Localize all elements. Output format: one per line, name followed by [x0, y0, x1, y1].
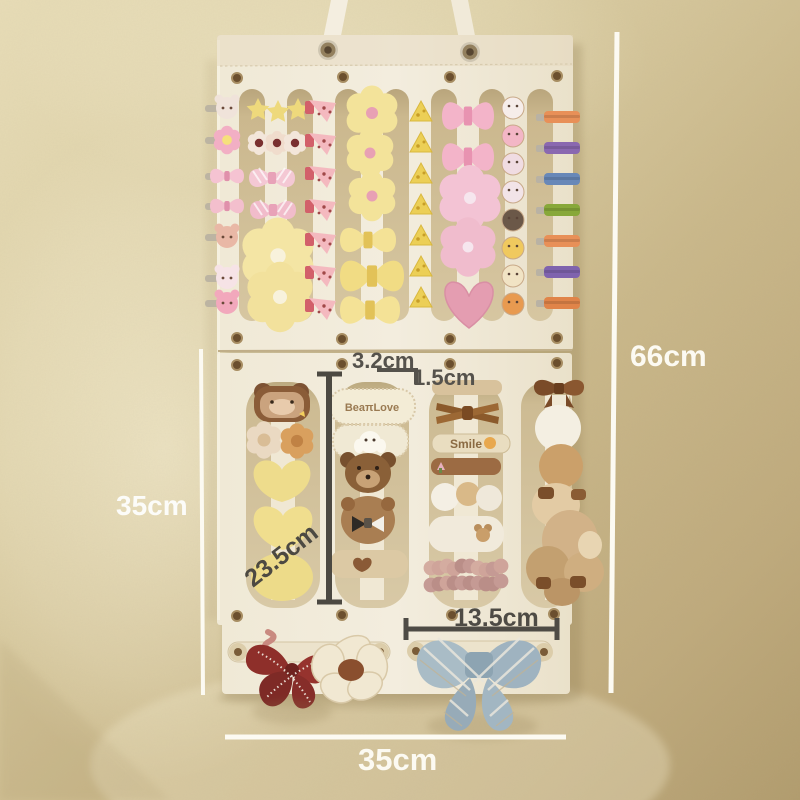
- svg-text:BeaπLove: BeaπLove: [345, 402, 399, 414]
- svg-text:35cm: 35cm: [116, 490, 188, 521]
- svg-text:35cm: 35cm: [358, 742, 437, 777]
- svg-text:66cm: 66cm: [630, 340, 707, 373]
- svg-text:1.5cm: 1.5cm: [413, 365, 475, 390]
- svg-text:Smile: Smile: [450, 437, 482, 451]
